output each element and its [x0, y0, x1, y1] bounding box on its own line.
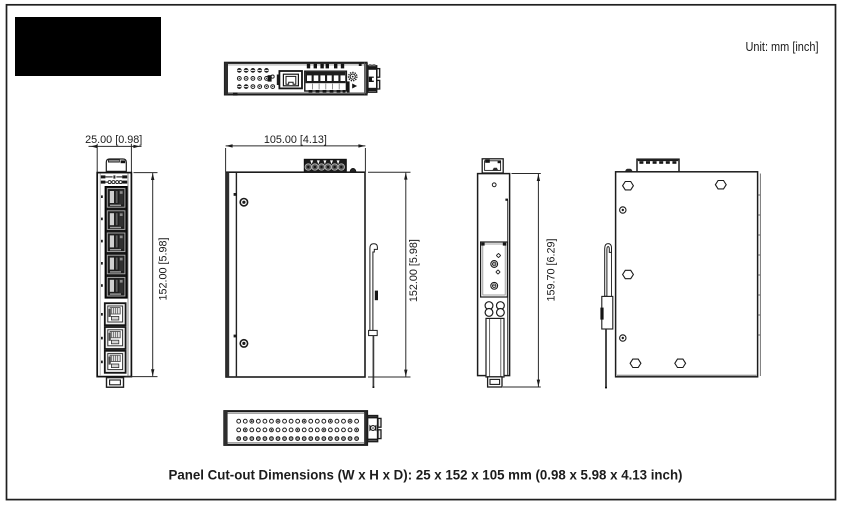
svg-text:25.00 [0.98]: 25.00 [0.98]: [85, 134, 142, 146]
svg-text:152.00 [5.98]: 152.00 [5.98]: [157, 237, 169, 300]
svg-text:159.70 [6.29]: 159.70 [6.29]: [545, 238, 557, 301]
svg-text:Unit: mm [inch]: Unit: mm [inch]: [746, 39, 819, 54]
svg-text:105.00 [4.13]: 105.00 [4.13]: [264, 134, 327, 146]
svg-text:152.00 [5.98]: 152.00 [5.98]: [408, 239, 420, 302]
svg-text:Panel Cut-out Dimensions (W x: Panel Cut-out Dimensions (W x H x D): 25…: [169, 467, 683, 482]
